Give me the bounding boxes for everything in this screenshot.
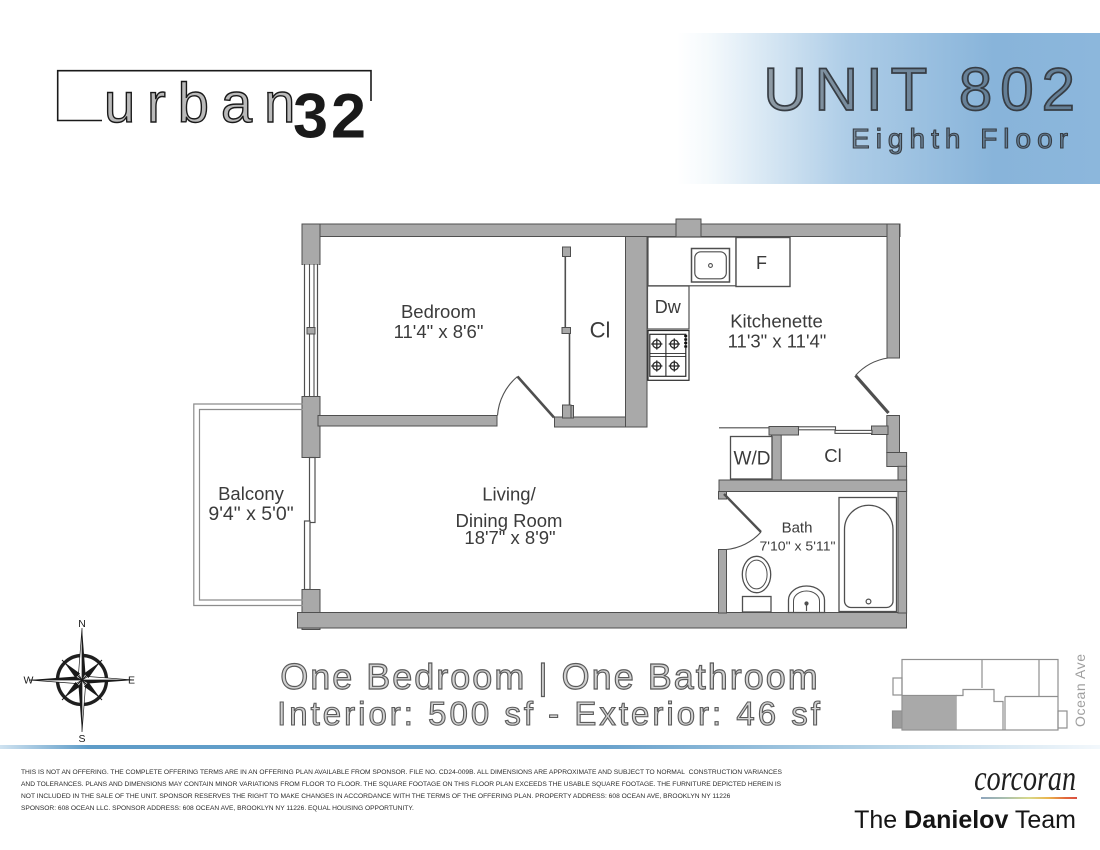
- svg-text:18'7" x 8'9": 18'7" x 8'9": [464, 527, 555, 548]
- svg-text:W/D: W/D: [734, 449, 771, 470]
- svg-text:Cl: Cl: [590, 318, 611, 343]
- svg-text:Kitchenette: Kitchenette: [730, 311, 823, 332]
- svg-text:Bedroom: Bedroom: [401, 301, 476, 322]
- svg-text:N: N: [78, 618, 86, 630]
- svg-text:11'3" x 11'4": 11'3" x 11'4": [728, 331, 827, 352]
- svg-text:11'4" x 8'6": 11'4" x 8'6": [394, 321, 484, 342]
- svg-text:Living/: Living/: [482, 484, 536, 505]
- svg-text:Bath: Bath: [782, 520, 813, 537]
- svg-text:Dw: Dw: [655, 297, 682, 317]
- svg-text:S: S: [78, 733, 85, 745]
- svg-text:7'10" x 5'11": 7'10" x 5'11": [760, 539, 836, 554]
- svg-text:Cl: Cl: [824, 445, 841, 466]
- svg-text:Balcony: Balcony: [218, 483, 285, 504]
- svg-text:9'4" x 5'0": 9'4" x 5'0": [208, 503, 293, 525]
- svg-text:F: F: [756, 253, 767, 273]
